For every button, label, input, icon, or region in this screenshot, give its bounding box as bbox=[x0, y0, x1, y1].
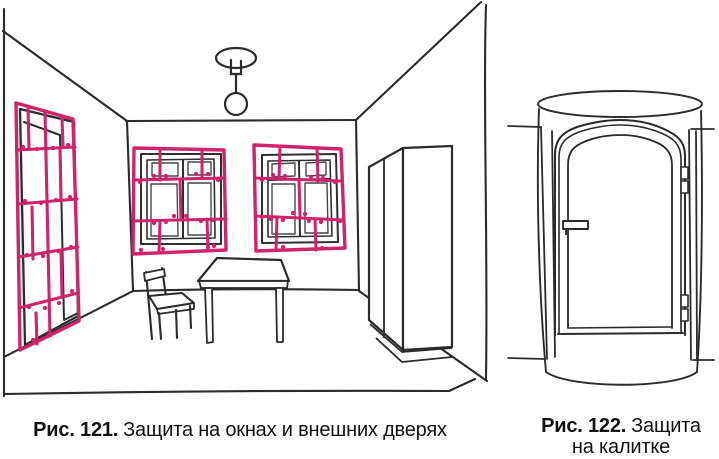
table-apron bbox=[199, 281, 288, 288]
wardrobe-side-face bbox=[369, 148, 403, 350]
figure-121-label: Рис. 121. bbox=[33, 419, 118, 441]
figure-122-text-line2: на калитке bbox=[572, 436, 670, 458]
chair-leg bbox=[176, 310, 177, 338]
gate-security-illustration bbox=[505, 83, 719, 395]
door-bottom bbox=[558, 333, 683, 334]
chair-leg bbox=[159, 313, 161, 339]
figure-121-text: Защита на окнах и внешних дверях bbox=[123, 419, 447, 441]
lamp-bulb bbox=[225, 93, 247, 115]
table bbox=[198, 258, 289, 343]
table-leg bbox=[205, 288, 213, 343]
chair-top-rail bbox=[144, 269, 165, 281]
wardrobe bbox=[369, 146, 452, 362]
door-panel bbox=[568, 135, 672, 328]
figure-122-label: Рис. 122. bbox=[541, 415, 626, 437]
ceiling-lamp bbox=[216, 48, 256, 115]
door-panel-bottom bbox=[569, 327, 671, 328]
figure-122-caption: Рис. 122.Защита на калитке bbox=[532, 416, 710, 458]
figure-122-text: Защита bbox=[631, 415, 701, 437]
room-security-illustration bbox=[0, 0, 500, 412]
gate-handle bbox=[563, 221, 588, 235]
gate-side-posts bbox=[541, 127, 697, 360]
book-page: Рис. 121.Защита на окнах и внешних дверя… bbox=[0, 0, 719, 459]
table-leg bbox=[276, 288, 283, 342]
pillar-top bbox=[538, 91, 702, 117]
pillar-bottom-arc bbox=[546, 372, 697, 385]
wardrobe-front-face bbox=[403, 146, 452, 350]
chair-leg bbox=[190, 306, 191, 328]
chair bbox=[144, 268, 194, 339]
figure-121-caption: Рис. 121.Защита на окнах и внешних дверя… bbox=[8, 419, 472, 441]
tabletop bbox=[198, 258, 289, 281]
chair-back-stile bbox=[146, 272, 152, 339]
chair-seat bbox=[149, 293, 194, 309]
lamp-rose bbox=[216, 48, 256, 68]
